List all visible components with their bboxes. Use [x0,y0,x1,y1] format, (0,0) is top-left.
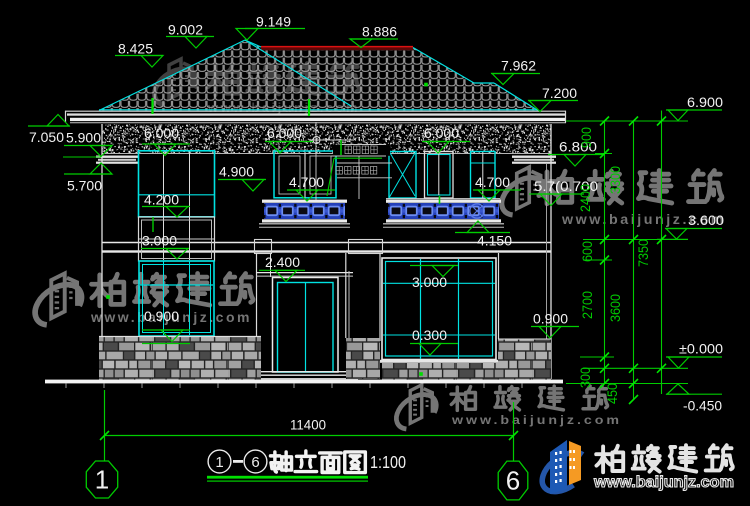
svg-text:300: 300 [577,367,593,388]
svg-text:450: 450 [604,383,620,404]
svg-text:3.000: 3.000 [142,233,177,249]
svg-text:900: 900 [578,127,594,148]
svg-text:5.900: 5.900 [66,130,101,146]
svg-text:7.050: 7.050 [29,129,64,145]
svg-text:7350: 7350 [635,239,651,267]
svg-text:1: 1 [215,454,223,471]
svg-text:www.baijunjz.com: www.baijunjz.com [451,413,622,427]
svg-text:1:100: 1:100 [370,452,406,472]
svg-text:-0.450: -0.450 [683,398,722,414]
svg-text:6.000: 6.000 [424,125,459,141]
svg-text:3300: 3300 [607,166,623,194]
svg-text:5.700: 5.700 [67,178,102,194]
svg-text:6: 6 [251,454,259,471]
svg-text:7.962: 7.962 [501,58,536,74]
svg-text:4.700: 4.700 [289,174,324,190]
svg-text:4.150: 4.150 [477,233,512,249]
svg-text:7.200: 7.200 [542,85,577,101]
svg-text:2400: 2400 [577,184,593,212]
svg-text:600: 600 [579,241,595,262]
svg-text:2.400: 2.400 [265,254,300,270]
svg-text:8.886: 8.886 [362,24,397,40]
svg-text:1: 1 [95,465,109,495]
svg-text:6.000: 6.000 [267,125,302,141]
svg-text:3.600: 3.600 [688,212,724,228]
svg-text:4.200: 4.200 [144,192,179,208]
svg-text:11400: 11400 [290,417,326,433]
svg-text:±0.000: ±0.000 [679,341,723,357]
svg-text:3600: 3600 [607,294,623,322]
svg-text:2700: 2700 [579,291,595,319]
svg-text:6.000: 6.000 [144,125,179,141]
svg-text:6: 6 [506,466,520,496]
svg-text:9.002: 9.002 [168,22,203,38]
svg-text:4.700: 4.700 [475,174,510,190]
svg-text:4.900: 4.900 [219,164,254,180]
svg-text:0.900: 0.900 [144,308,179,324]
svg-text:www.baijunjz.com: www.baijunjz.com [593,474,734,491]
svg-text:3.000: 3.000 [412,274,447,290]
svg-text:9.149: 9.149 [256,14,291,30]
svg-text:0.900: 0.900 [533,311,568,327]
svg-text:0.300: 0.300 [412,327,447,343]
svg-text:6.900: 6.900 [687,94,723,110]
svg-text:8.425: 8.425 [118,41,153,57]
